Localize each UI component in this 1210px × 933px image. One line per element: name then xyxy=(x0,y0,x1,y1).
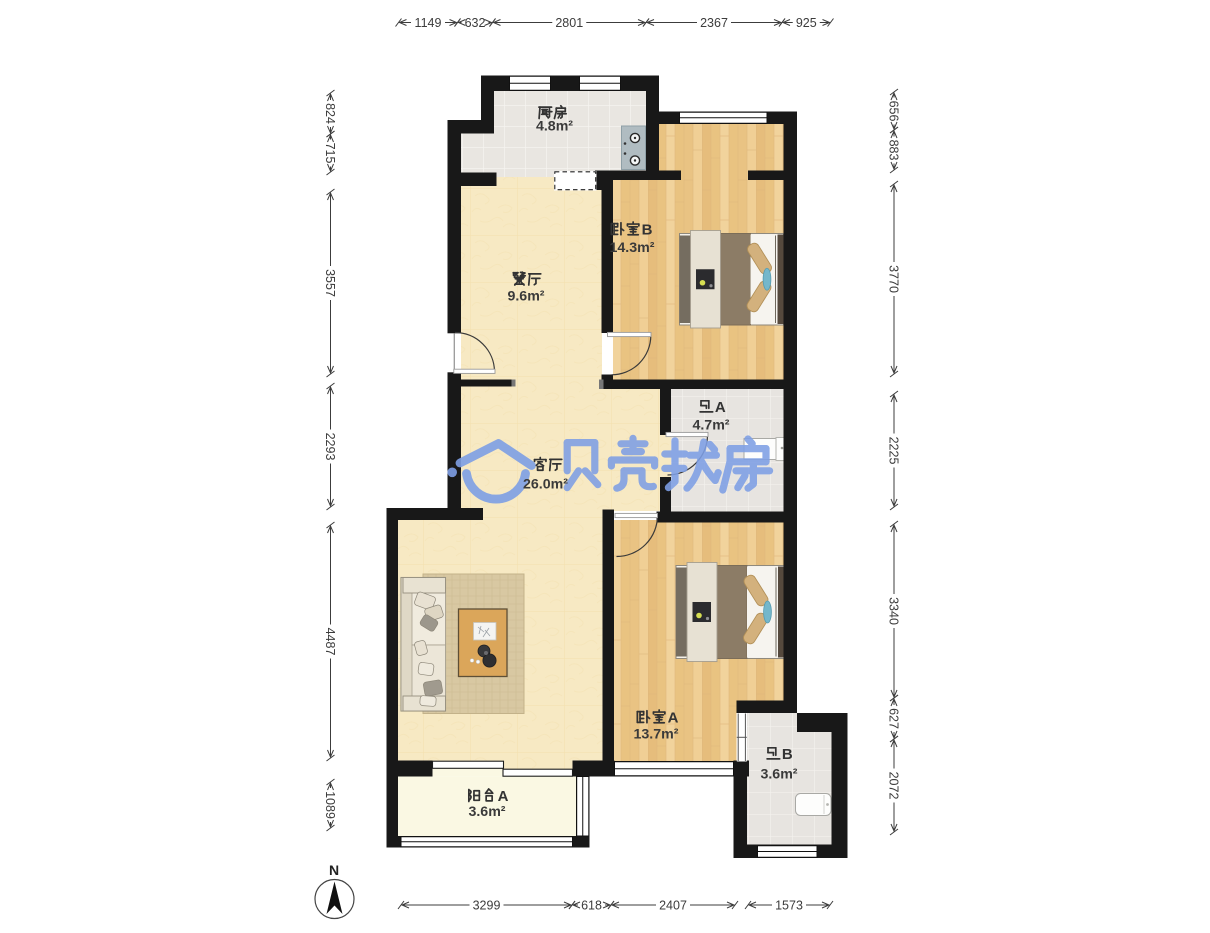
svg-text:1573: 1573 xyxy=(775,898,803,912)
svg-text:3299: 3299 xyxy=(473,898,501,912)
svg-text:13.7m²: 13.7m² xyxy=(634,727,679,743)
svg-text:2407: 2407 xyxy=(659,898,687,912)
svg-text:3770: 3770 xyxy=(887,265,901,293)
svg-text:4.7m²: 4.7m² xyxy=(692,418,729,434)
svg-text:1089: 1089 xyxy=(323,791,337,819)
svg-text:627: 627 xyxy=(887,708,901,729)
svg-text:A: A xyxy=(668,709,679,726)
svg-text:A: A xyxy=(498,788,509,805)
svg-text:618: 618 xyxy=(581,898,602,912)
svg-text:4487: 4487 xyxy=(323,628,337,656)
svg-text:14.3m²: 14.3m² xyxy=(610,240,655,256)
svg-text:632: 632 xyxy=(465,16,486,30)
svg-text:2072: 2072 xyxy=(887,772,901,800)
svg-text:2293: 2293 xyxy=(323,433,337,461)
svg-text:656: 656 xyxy=(887,101,901,122)
svg-text:2801: 2801 xyxy=(555,16,583,30)
svg-text:925: 925 xyxy=(796,16,817,30)
svg-text:3.6m²: 3.6m² xyxy=(468,804,505,820)
svg-text:3340: 3340 xyxy=(887,597,901,625)
svg-text:B: B xyxy=(782,746,793,763)
svg-text:715: 715 xyxy=(323,143,337,164)
svg-text:4.8m²: 4.8m² xyxy=(536,119,573,135)
svg-text:2367: 2367 xyxy=(700,16,728,30)
svg-text:3.6m²: 3.6m² xyxy=(760,767,797,783)
svg-text:2225: 2225 xyxy=(887,437,901,465)
svg-text:1149: 1149 xyxy=(415,16,442,30)
svg-text:26.0m²: 26.0m² xyxy=(523,477,568,493)
svg-text:N: N xyxy=(329,862,339,878)
svg-text:A: A xyxy=(715,399,726,416)
svg-text:3557: 3557 xyxy=(323,269,337,297)
svg-text:824: 824 xyxy=(323,103,337,124)
svg-text:9.6m²: 9.6m² xyxy=(507,289,544,305)
svg-text:883: 883 xyxy=(887,140,901,161)
svg-text:B: B xyxy=(642,221,653,238)
